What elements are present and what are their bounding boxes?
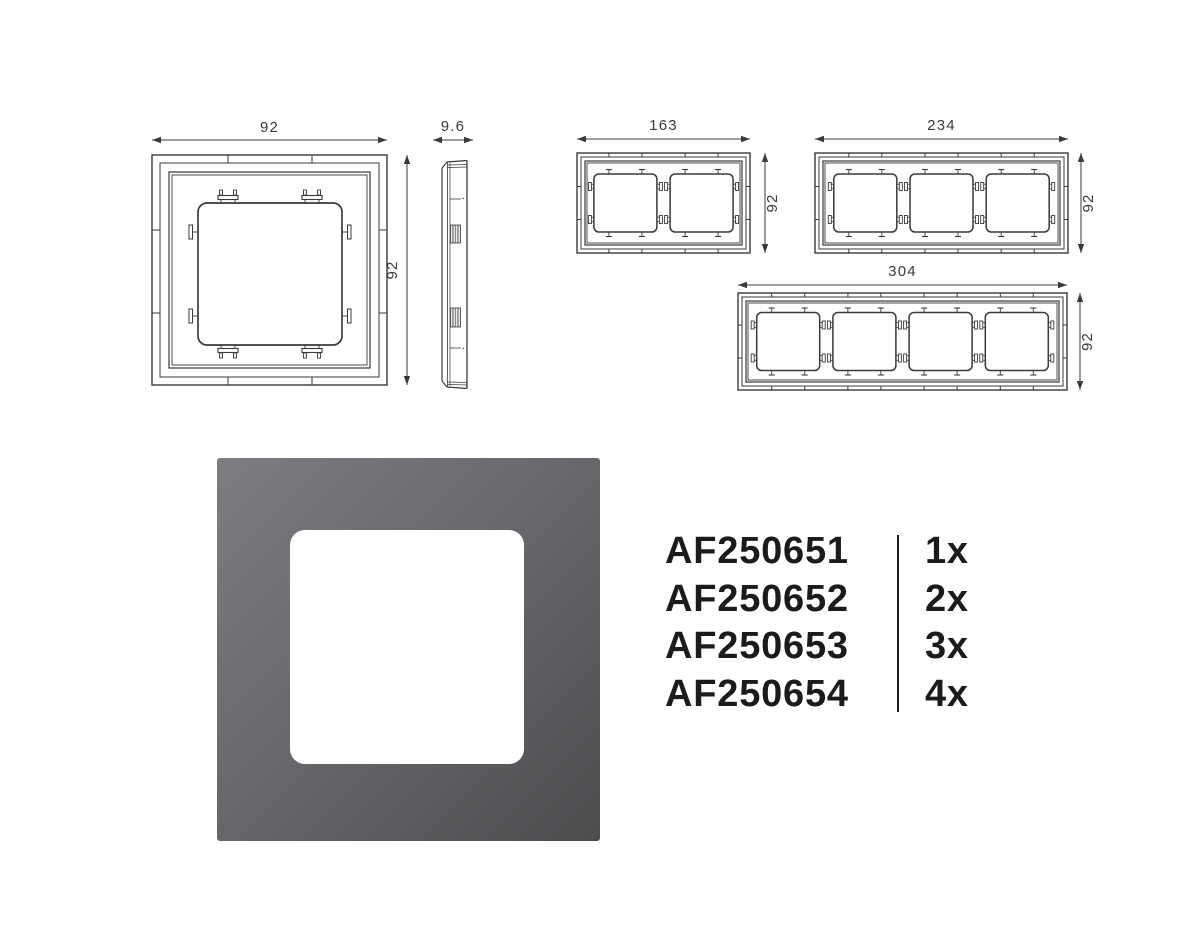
drawing-frame-3gang: 23492 xyxy=(808,112,1106,264)
drawing-frame-2gang: 16392 xyxy=(565,112,789,264)
dimension-label: 92 xyxy=(260,119,279,136)
code-column: AF250651 AF250652 AF250653 AF250654 xyxy=(665,528,897,718)
code-af250653: AF250653 xyxy=(665,623,897,671)
dimension-label: 9.6 xyxy=(441,118,465,135)
drawing-frame-4gang: 30492 xyxy=(728,258,1106,400)
dimension-label: 163 xyxy=(649,117,678,134)
qty-4x: 4x xyxy=(925,671,969,719)
qty-2x: 2x xyxy=(925,576,969,624)
code-af250652: AF250652 xyxy=(665,576,897,624)
product-photo-opening xyxy=(290,530,524,764)
frame-4gang-drawing: 30492 xyxy=(728,258,1106,400)
dimension-label: 304 xyxy=(888,263,917,280)
front-view-drawing: 9292 xyxy=(147,112,427,402)
dimension-label: 92 xyxy=(1079,332,1096,351)
divider-line xyxy=(897,535,899,712)
side-view-drawing: 9.6 xyxy=(428,112,492,400)
code-af250654: AF250654 xyxy=(665,671,897,719)
dimension-label: 92 xyxy=(764,193,781,212)
drawing-side-view: 9.6 xyxy=(428,112,492,400)
qty-3x: 3x xyxy=(925,623,969,671)
drawing-front-view: 9292 xyxy=(147,112,427,402)
dimension-label: 234 xyxy=(927,117,956,134)
frame-3gang-drawing: 23492 xyxy=(808,112,1106,264)
qty-column: 1x 2x 3x 4x xyxy=(925,528,969,718)
spec-sheet: 9292 9.6 16392 23492 30492 AF250651 AF25… xyxy=(0,0,1200,933)
product-photo-frame xyxy=(217,458,600,841)
frame-2gang-drawing: 16392 xyxy=(565,112,789,264)
dimension-label: 92 xyxy=(1080,193,1097,212)
code-af250651: AF250651 xyxy=(665,528,897,576)
qty-1x: 1x xyxy=(925,528,969,576)
product-code-list: AF250651 AF250652 AF250653 AF250654 1x 2… xyxy=(665,528,969,718)
